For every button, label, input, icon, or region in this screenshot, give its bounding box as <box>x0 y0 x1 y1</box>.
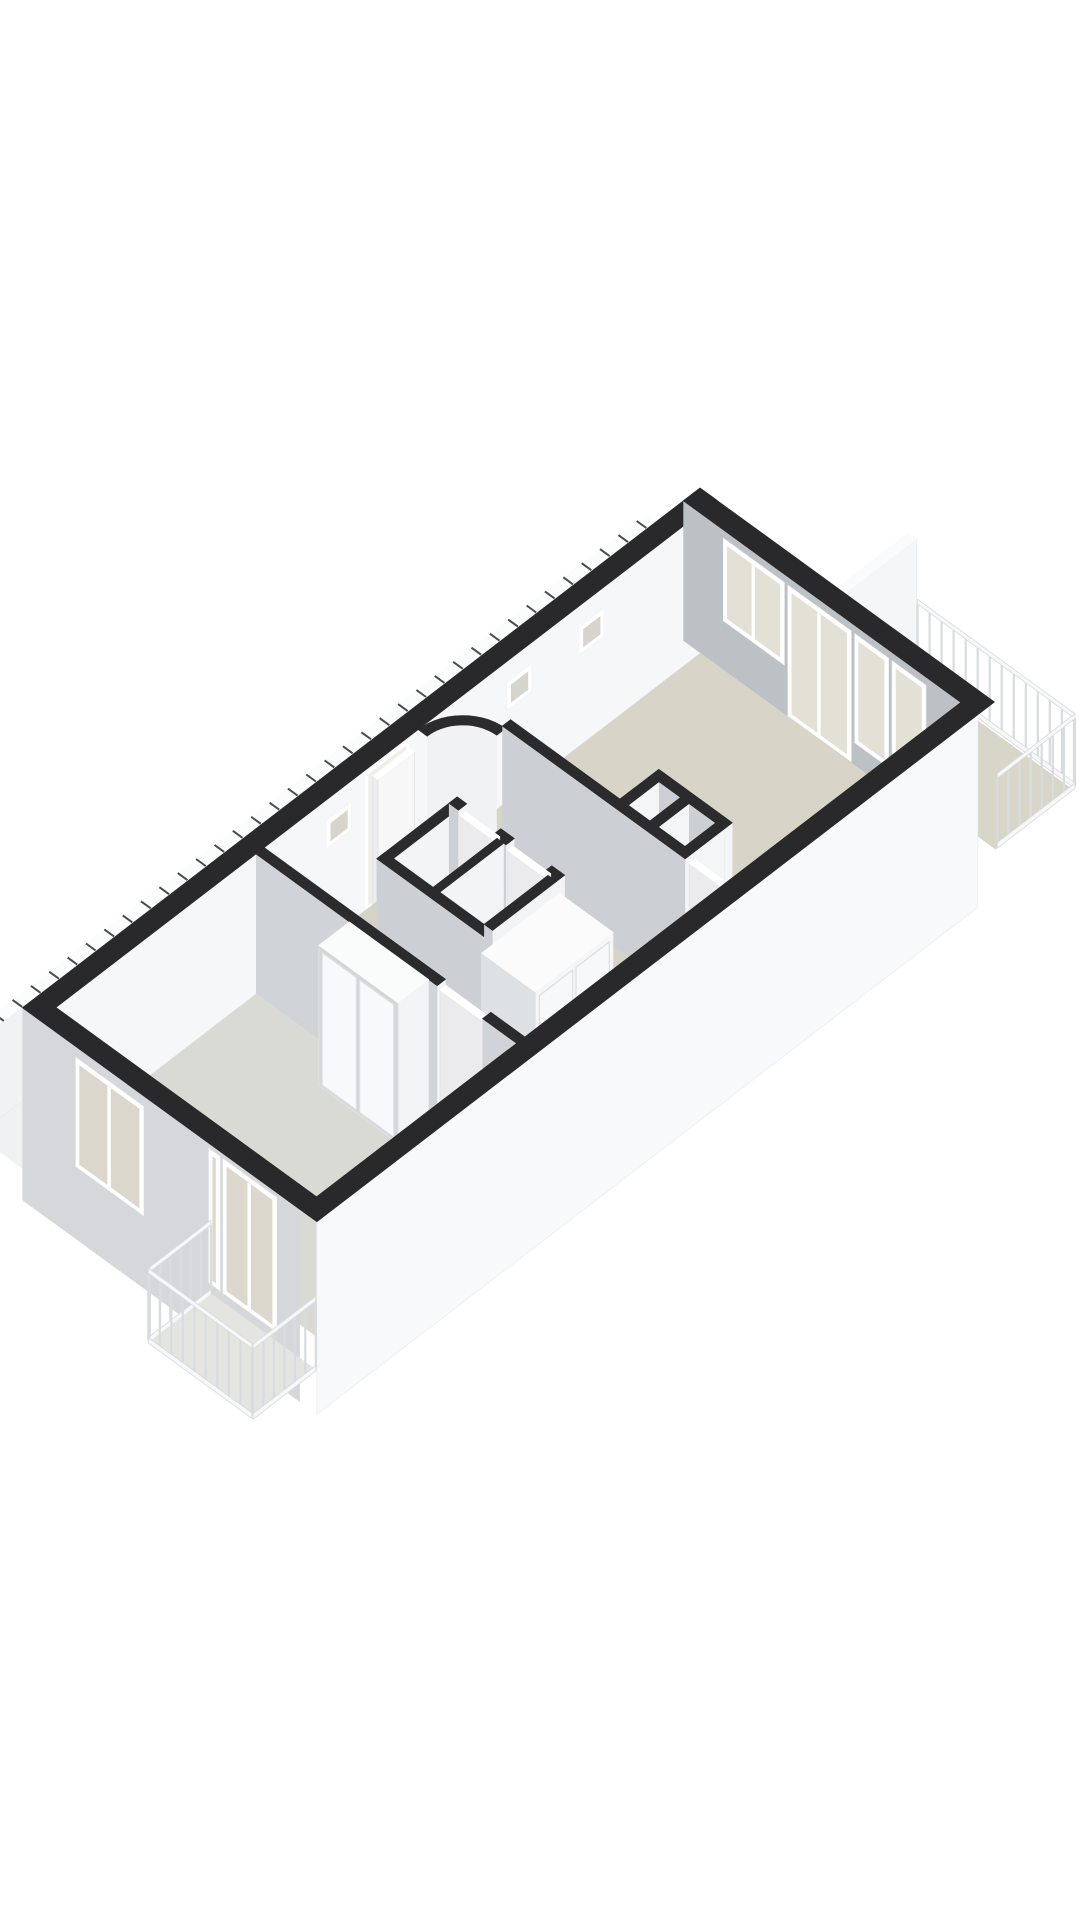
floorplan-svg <box>0 0 1080 1920</box>
wardrobe-door-2 <box>360 980 394 1137</box>
wardrobe-door-1 <box>322 953 356 1110</box>
floorplan-stage <box>0 0 1080 1920</box>
